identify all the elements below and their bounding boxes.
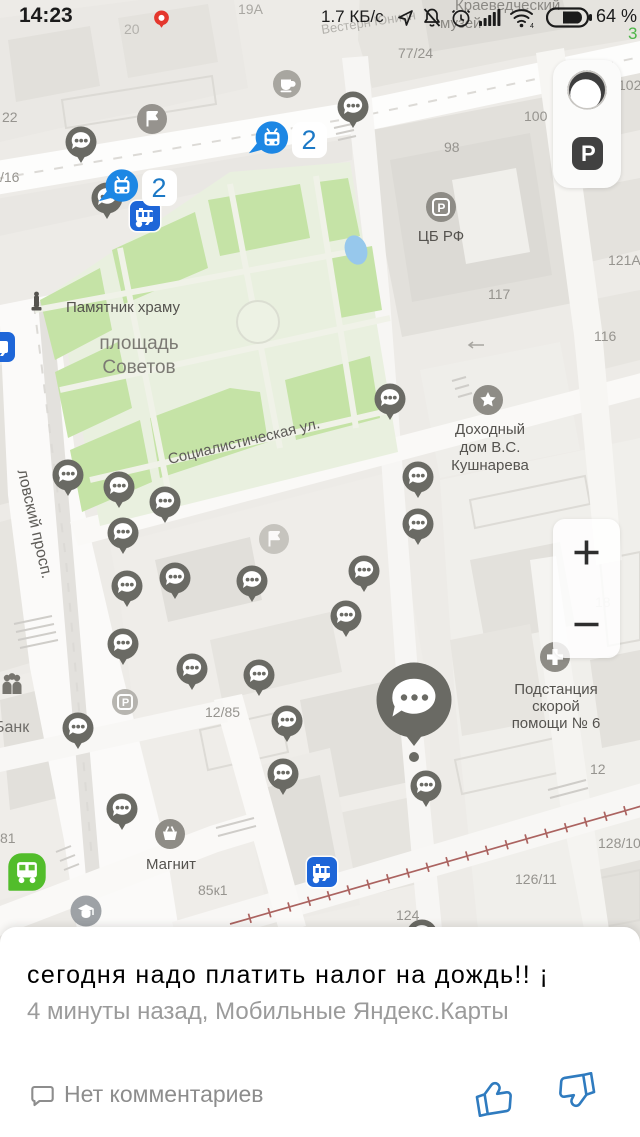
svg-text:Доходный: Доходный bbox=[455, 421, 525, 438]
svg-text:ЦБ РФ: ЦБ РФ bbox=[418, 228, 464, 245]
svg-text:Памятник храму: Памятник храму bbox=[66, 299, 180, 316]
svg-text:12: 12 bbox=[590, 761, 606, 777]
svg-text:116: 116 bbox=[594, 328, 617, 344]
svg-text:77/24: 77/24 bbox=[398, 45, 433, 61]
svg-text:117: 117 bbox=[488, 286, 511, 302]
svg-text:помощи № 6: помощи № 6 bbox=[512, 715, 601, 732]
svg-text:P: P bbox=[122, 697, 129, 709]
svg-text:Подстанция: Подстанция bbox=[514, 681, 597, 698]
svg-text:площадь: площадь bbox=[99, 333, 178, 354]
svg-text:81: 81 bbox=[0, 830, 16, 846]
svg-text:скорой: скорой bbox=[532, 698, 580, 715]
svg-text:102: 102 bbox=[618, 77, 640, 93]
svg-text:2: 2 bbox=[151, 173, 166, 203]
svg-text:Магнит: Магнит bbox=[146, 856, 196, 873]
svg-text:85к1: 85к1 bbox=[198, 882, 228, 898]
svg-text:22: 22 bbox=[2, 109, 18, 125]
svg-text:Банк: Банк bbox=[0, 719, 30, 736]
svg-text:126/11: 126/11 bbox=[515, 871, 557, 887]
svg-text:2: 2 bbox=[301, 125, 316, 155]
svg-text:121А: 121А bbox=[608, 252, 640, 268]
svg-text:Кушнарева: Кушнарева bbox=[451, 457, 529, 474]
svg-text:дом В.С.: дом В.С. bbox=[460, 439, 521, 456]
svg-text:/16: /16 bbox=[0, 169, 20, 185]
svg-text:98: 98 bbox=[444, 139, 460, 155]
svg-text:124: 124 bbox=[396, 907, 420, 923]
svg-text:4: 4 bbox=[530, 23, 534, 30]
svg-text:Советов: Советов bbox=[102, 357, 175, 378]
svg-text:100: 100 bbox=[524, 108, 548, 124]
svg-text:P: P bbox=[437, 201, 445, 215]
svg-text:128/10: 128/10 bbox=[598, 835, 640, 851]
svg-text:12/85: 12/85 bbox=[205, 704, 240, 720]
